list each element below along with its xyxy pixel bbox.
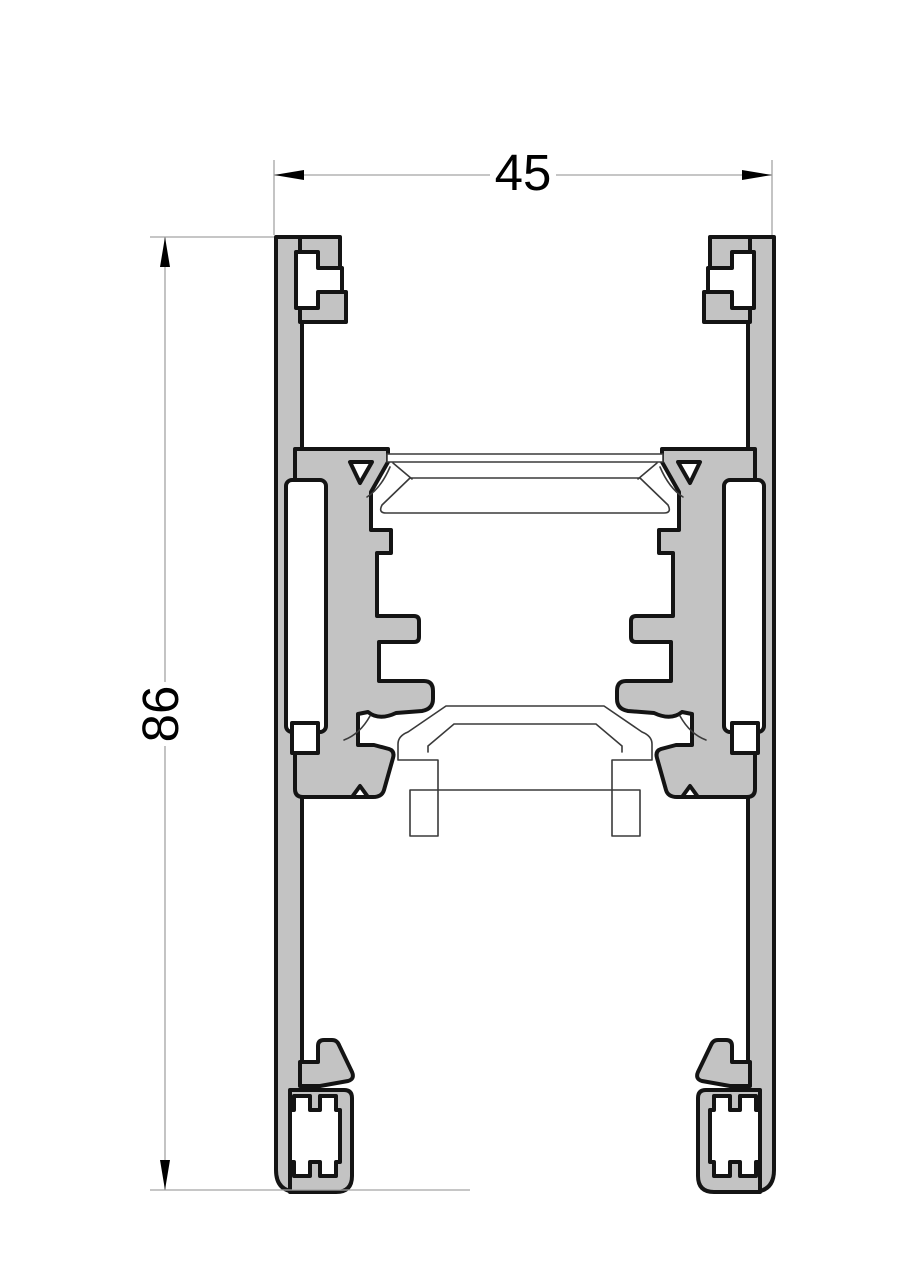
height-arrow-bottom [160, 1160, 170, 1190]
height-arrow-top [160, 237, 170, 267]
comb-slot-bottom-left [290, 1096, 340, 1176]
width-arrow-left [274, 170, 304, 180]
width-dimension-value: 45 [495, 144, 552, 201]
height-dimension-value: 86 [132, 686, 189, 743]
lower-gasket-leg-left [410, 790, 438, 836]
width-arrow-right [742, 170, 772, 180]
gaskets [344, 454, 706, 836]
wall-notch-right [732, 723, 758, 753]
dimension-width: 45 [274, 144, 772, 235]
wall-notch-left [292, 723, 318, 753]
upper-gasket-link-right [638, 463, 657, 479]
hook-bottom-right [697, 1040, 750, 1086]
comb-slot-bottom-right [710, 1096, 760, 1176]
upper-gasket-link-left [393, 463, 412, 479]
thermal-break-top-bar [387, 454, 663, 462]
lower-gasket-leg-right [612, 790, 640, 836]
chamber-left [286, 480, 326, 732]
chamber-right [724, 480, 764, 732]
upper-gasket [381, 478, 670, 513]
hook-bottom-left [300, 1040, 353, 1086]
technical-drawing-canvas: 45 86 [0, 0, 904, 1280]
profile-drawing: 45 86 [0, 0, 904, 1280]
lower-gasket [398, 706, 652, 790]
